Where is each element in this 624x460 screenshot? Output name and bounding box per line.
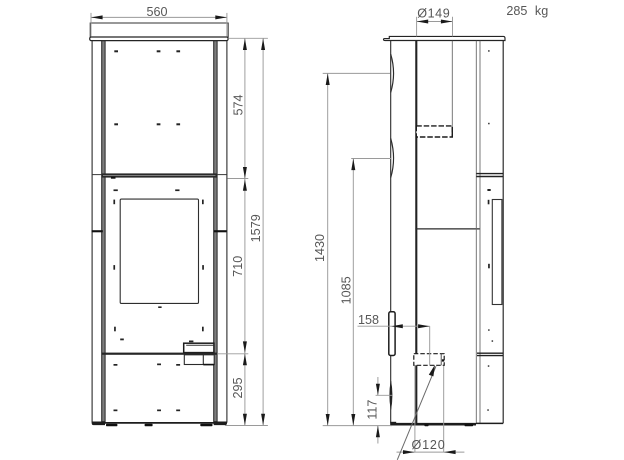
svg-text:Ø149: Ø149 bbox=[417, 7, 450, 21]
svg-text:285 kg: 285 kg bbox=[506, 4, 548, 18]
svg-text:1430: 1430 bbox=[313, 234, 327, 262]
svg-text:158: 158 bbox=[358, 313, 379, 327]
svg-text:574: 574 bbox=[231, 94, 245, 115]
svg-text:117: 117 bbox=[366, 400, 380, 420]
svg-text:710: 710 bbox=[231, 256, 245, 277]
svg-text:1579: 1579 bbox=[249, 214, 263, 242]
svg-text:Ø120: Ø120 bbox=[411, 438, 445, 452]
svg-text:295: 295 bbox=[231, 377, 245, 398]
svg-text:1085: 1085 bbox=[339, 276, 353, 304]
